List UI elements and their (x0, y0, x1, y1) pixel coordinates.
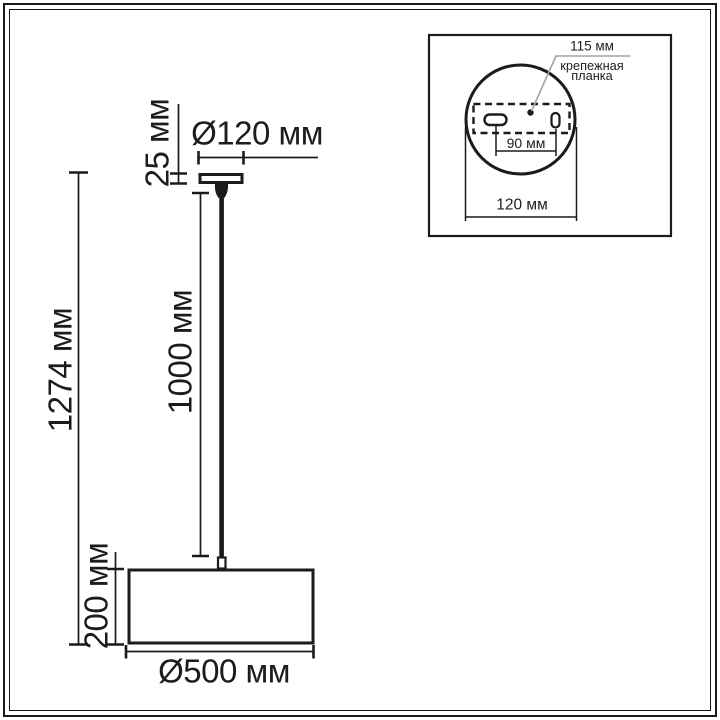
dim-shade-diameter-label: Ø500 мм (158, 655, 290, 688)
dim-cord-length-label: 1000 мм (164, 290, 197, 414)
dim-canopy-height-label: 25 мм (141, 99, 174, 188)
inset-top-view (429, 35, 671, 236)
pendant-side-view (129, 175, 313, 644)
suspension-cord (219, 196, 224, 559)
dim-canopy-diameter-label: Ø120 мм (191, 117, 323, 150)
inset-plate-diameter-label: 120 мм (496, 197, 547, 213)
dim-overall-height-label: 1274 мм (44, 308, 77, 432)
bracket-slot (485, 115, 507, 126)
bracket-center-point (527, 109, 533, 115)
inset-bracket-length-label: 115 мм (570, 39, 614, 53)
bracket-hole (552, 113, 560, 128)
shade-collar (218, 558, 226, 569)
lampshade (129, 570, 313, 643)
dim-shade-height-label: 200 мм (80, 543, 113, 650)
ceiling-canopy (200, 175, 242, 183)
inset-hole-spacing-label: 90 мм (507, 136, 546, 150)
inset-bracket-name-label: крепежная планка (560, 61, 623, 81)
technical-drawing-page: { "drawing": { "overall_height": "1274 м… (0, 0, 720, 720)
cord-grip (215, 184, 228, 199)
